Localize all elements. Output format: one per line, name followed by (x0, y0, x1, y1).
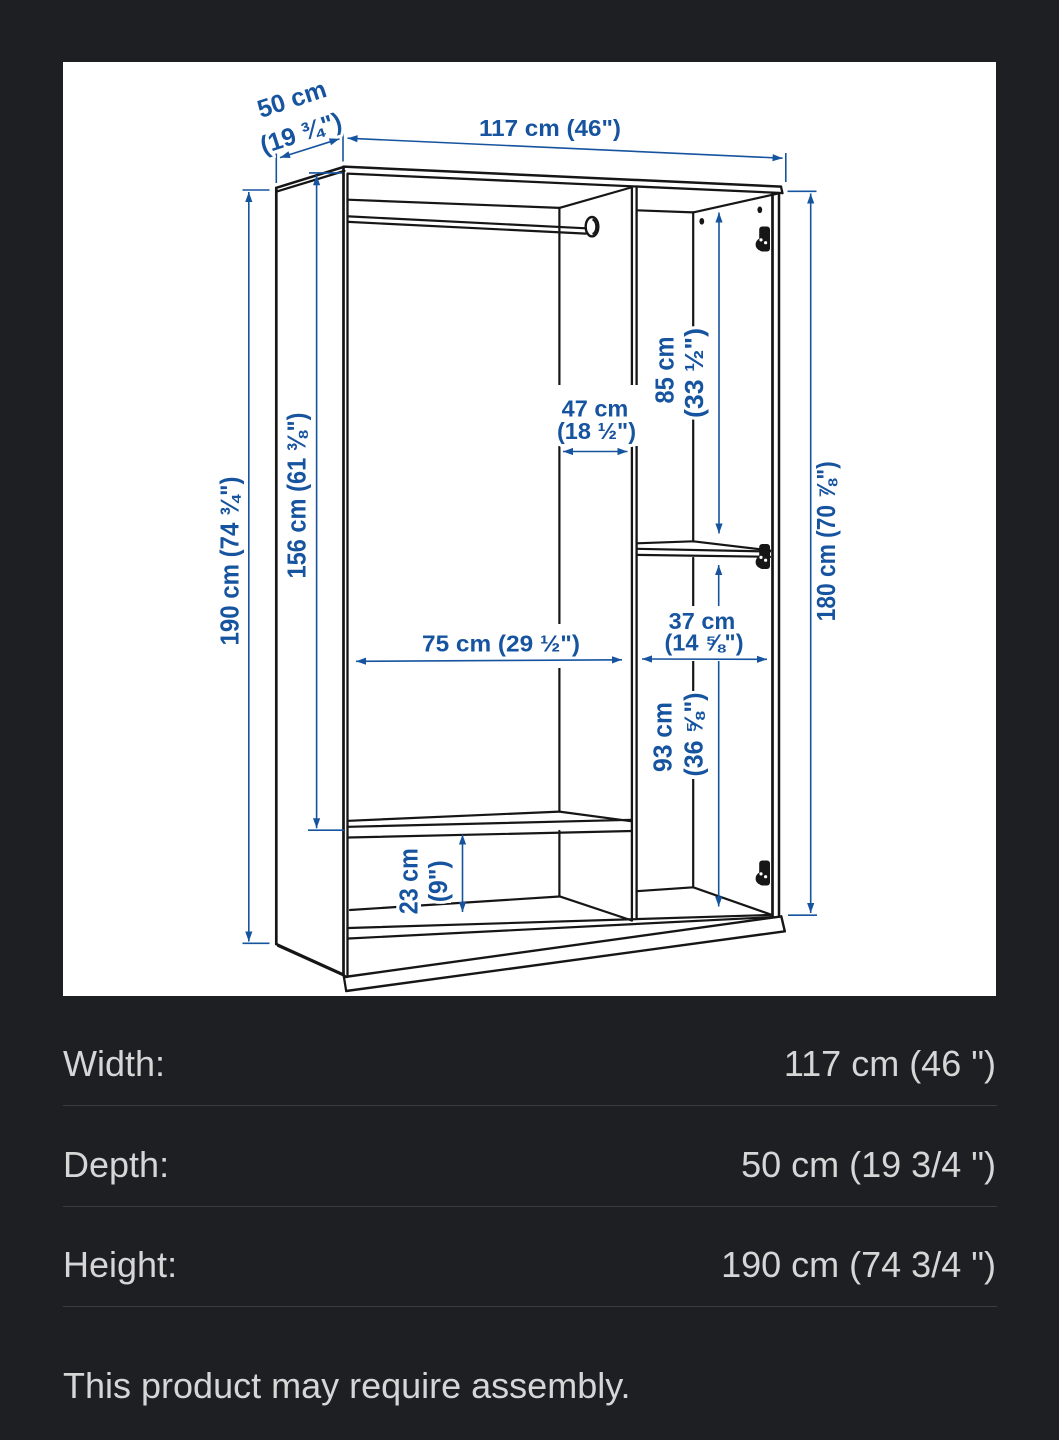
svg-text:190 cm (74 ¾"): 190 cm (74 ¾") (216, 477, 244, 646)
svg-text:23 cm: 23 cm (396, 848, 424, 914)
svg-text:117 cm (46"): 117 cm (46") (479, 115, 621, 141)
svg-text:(14 ⅝"): (14 ⅝") (664, 630, 743, 656)
svg-text:75 cm (29 ½"): 75 cm (29 ½") (422, 631, 580, 657)
svg-text:(33 ½"): (33 ½") (681, 328, 709, 418)
svg-text:93 cm: 93 cm (650, 702, 678, 772)
svg-text:(36 ⅝"): (36 ⅝") (681, 693, 709, 777)
svg-text:180 cm (70 ⅞"): 180 cm (70 ⅞") (813, 461, 841, 621)
svg-text:85 cm: 85 cm (652, 337, 680, 404)
svg-text:(9"): (9") (425, 860, 453, 902)
svg-text:156 cm (61 ⅜"): 156 cm (61 ⅜") (284, 413, 312, 579)
svg-text:(18 ½"): (18 ½") (557, 418, 636, 444)
